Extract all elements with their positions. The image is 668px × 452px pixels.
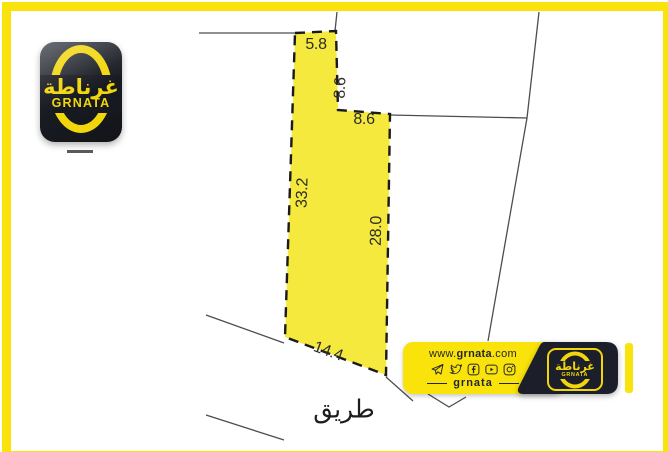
road-edge-zigzag bbox=[428, 394, 466, 407]
telegram-icon bbox=[431, 363, 444, 376]
logo-gloss bbox=[40, 42, 122, 142]
road-line-upper bbox=[206, 315, 284, 343]
dimension-top: 5.8 bbox=[305, 36, 326, 54]
logo-text-band: غرناطة GRNATA bbox=[550, 361, 600, 379]
handle-text: grnata bbox=[453, 378, 493, 389]
website-url: www.grnata.com bbox=[429, 348, 517, 361]
dimension-neck: 8.6 bbox=[332, 77, 351, 99]
website-prefix: www. bbox=[429, 348, 456, 360]
youtube-icon bbox=[485, 363, 498, 376]
logo-latin-text: GRNATA bbox=[562, 372, 589, 377]
social-icons-row bbox=[431, 363, 516, 376]
flyer-canvas: 5.8 8.6 8.6 33.2 28.0 14.4 طريق غرناطة G… bbox=[0, 0, 668, 452]
dimension-step: 8.6 bbox=[353, 111, 374, 129]
handle-row: grnata bbox=[427, 378, 519, 389]
logo-underline-dash bbox=[67, 150, 93, 153]
neighbor-line-right-diagonal bbox=[488, 12, 539, 341]
facebook-icon bbox=[467, 363, 480, 376]
logo-arabic-text: غرناطة bbox=[555, 362, 595, 372]
neighbor-line-top-vertical bbox=[335, 12, 337, 31]
dimension-right: 28.0 bbox=[368, 216, 387, 246]
road-label: طريق bbox=[313, 395, 375, 424]
dimension-left: 33.2 bbox=[293, 178, 312, 209]
grnata-logo: غرناطة GRNATA bbox=[40, 42, 122, 142]
twitter-icon bbox=[449, 363, 462, 376]
handle-line-left bbox=[427, 383, 447, 385]
banner-side-bar bbox=[625, 343, 633, 393]
grnata-logo-small: غرناطة GRNATA bbox=[547, 348, 603, 391]
neighbor-line-right-horizontal bbox=[390, 115, 527, 118]
website-name: grnata bbox=[457, 348, 492, 360]
road-line-lower bbox=[206, 415, 284, 440]
